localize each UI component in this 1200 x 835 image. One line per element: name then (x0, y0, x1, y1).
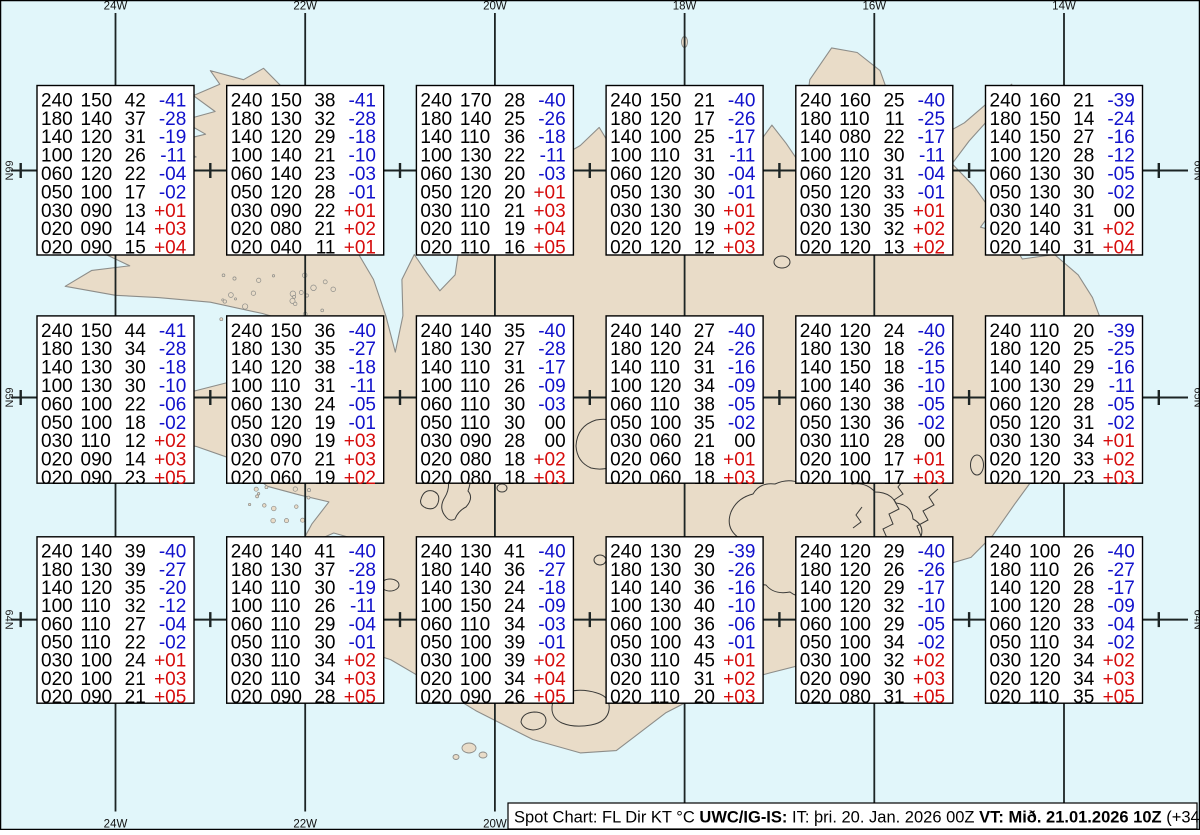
svg-text:020: 020 (800, 468, 832, 489)
svg-text:020: 020 (990, 468, 1022, 489)
svg-text:18: 18 (694, 468, 715, 489)
svg-text:18W: 18W (673, 1, 697, 13)
svg-text:120: 120 (650, 238, 682, 259)
svg-text:120: 120 (839, 238, 871, 259)
svg-text:020: 020 (231, 687, 263, 708)
svg-text:15: 15 (125, 238, 146, 259)
svg-text:+01: +01 (344, 238, 376, 259)
svg-text:20W: 20W (483, 1, 507, 13)
svg-text:090: 090 (81, 468, 113, 489)
svg-text:+05: +05 (1103, 687, 1135, 708)
svg-text:26: 26 (504, 687, 525, 708)
svg-text:+03: +03 (1103, 468, 1135, 489)
svg-text:+03: +03 (913, 468, 945, 489)
svg-text:28: 28 (314, 687, 335, 708)
svg-text:21: 21 (125, 687, 146, 708)
svg-text:20: 20 (694, 687, 715, 708)
svg-text:040: 040 (270, 238, 302, 259)
svg-text:+03: +03 (723, 238, 755, 259)
svg-text:020: 020 (420, 687, 452, 708)
svg-text:020: 020 (41, 238, 73, 259)
svg-text:12: 12 (694, 238, 715, 259)
svg-text:020: 020 (990, 238, 1022, 259)
svg-text:23: 23 (125, 468, 146, 489)
svg-text:020: 020 (610, 687, 642, 708)
svg-text:+02: +02 (344, 468, 376, 489)
svg-text:31: 31 (1073, 238, 1094, 259)
svg-text:65N: 65N (3, 387, 15, 407)
svg-text:020: 020 (800, 687, 832, 708)
svg-text:+05: +05 (154, 468, 186, 489)
svg-text:+05: +05 (533, 687, 565, 708)
svg-text:24W: 24W (104, 1, 128, 13)
svg-text:11: 11 (316, 238, 336, 259)
svg-text:080: 080 (839, 687, 871, 708)
svg-text:19: 19 (314, 468, 335, 489)
svg-text:66N: 66N (3, 160, 15, 180)
svg-text:020: 020 (800, 238, 832, 259)
svg-text:080: 080 (460, 468, 492, 489)
svg-text:060: 060 (650, 468, 682, 489)
svg-text:+05: +05 (154, 687, 186, 708)
svg-text:020: 020 (420, 468, 452, 489)
svg-text:+05: +05 (533, 238, 565, 259)
svg-text:110: 110 (1029, 687, 1059, 708)
svg-text:020: 020 (990, 687, 1022, 708)
svg-text:17: 17 (883, 468, 904, 489)
svg-text:14W: 14W (1052, 1, 1076, 13)
svg-text:020: 020 (41, 687, 73, 708)
svg-text:64N: 64N (1192, 610, 1200, 630)
svg-text:090: 090 (460, 687, 492, 708)
svg-text:64N: 64N (3, 610, 15, 630)
svg-text:22W: 22W (293, 1, 317, 13)
svg-text:+04: +04 (1103, 238, 1136, 259)
svg-text:+04: +04 (154, 238, 187, 259)
svg-text:020: 020 (231, 238, 263, 259)
svg-text:020: 020 (610, 468, 642, 489)
svg-text:020: 020 (610, 238, 642, 259)
svg-text:+03: +03 (723, 687, 755, 708)
svg-text:110: 110 (460, 238, 490, 259)
svg-text:090: 090 (81, 238, 113, 259)
svg-text:020: 020 (41, 468, 73, 489)
svg-text:020: 020 (420, 238, 452, 259)
svg-text:+02: +02 (913, 238, 945, 259)
svg-text:66N: 66N (1192, 160, 1200, 180)
svg-text:100: 100 (839, 468, 871, 489)
svg-text:13: 13 (883, 238, 904, 259)
svg-text:16W: 16W (862, 1, 886, 13)
svg-text:+05: +05 (913, 687, 945, 708)
svg-text:16: 16 (504, 238, 525, 259)
svg-text:65N: 65N (1192, 387, 1200, 407)
svg-text:060: 060 (270, 468, 302, 489)
svg-text:20W: 20W (483, 819, 507, 831)
svg-text:120: 120 (1029, 468, 1061, 489)
svg-text:090: 090 (270, 687, 302, 708)
svg-text:23: 23 (1073, 468, 1094, 489)
svg-text:Spot Chart: FL Dir KT °C UWC/I: Spot Chart: FL Dir KT °C UWC/IG-IS: IT: … (514, 809, 1200, 827)
svg-text:35: 35 (1073, 687, 1094, 708)
svg-text:020: 020 (231, 468, 263, 489)
svg-text:+03: +03 (533, 468, 565, 489)
svg-text:090: 090 (81, 687, 113, 708)
svg-text:24W: 24W (104, 819, 128, 831)
svg-text:18: 18 (504, 468, 525, 489)
svg-text:110: 110 (650, 687, 680, 708)
svg-text:140: 140 (1029, 238, 1061, 259)
svg-text:+05: +05 (344, 687, 376, 708)
svg-text:+03: +03 (723, 468, 755, 489)
svg-text:31: 31 (883, 687, 904, 708)
svg-text:22W: 22W (293, 819, 317, 831)
